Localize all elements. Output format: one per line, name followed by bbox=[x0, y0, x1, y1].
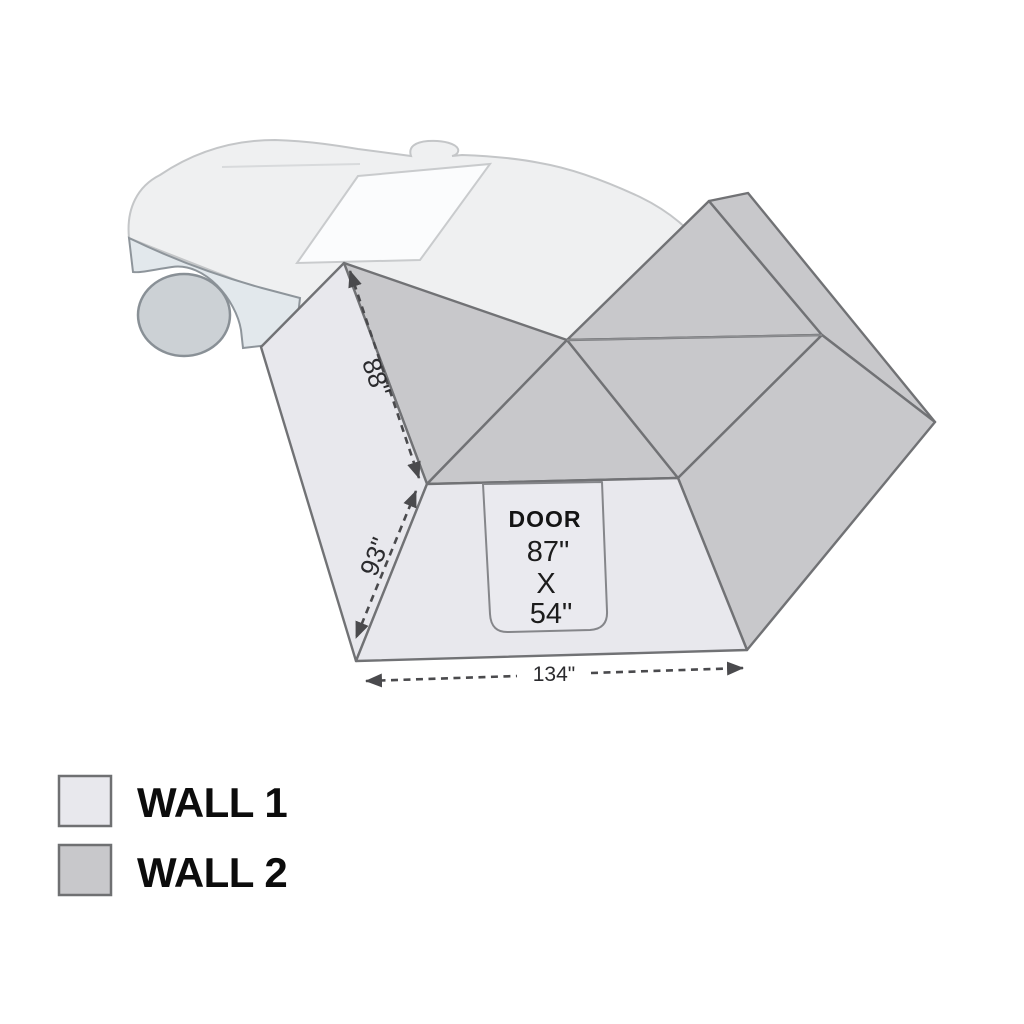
dimension-base-arrow-right bbox=[591, 668, 743, 673]
dimension-base: 134" bbox=[366, 663, 743, 686]
legend: WALL 1 WALL 2 bbox=[59, 776, 287, 896]
legend-swatch-wall2 bbox=[59, 845, 111, 895]
legend-label-wall1: WALL 1 bbox=[137, 779, 287, 826]
door-separator: X bbox=[536, 568, 555, 600]
door-width: 54" bbox=[530, 598, 573, 630]
dimension-base-label: 134" bbox=[533, 663, 576, 686]
legend-label-wall2: WALL 2 bbox=[137, 849, 287, 896]
dimension-base-arrow-left bbox=[366, 676, 517, 681]
awning-diagram: DOOR 87" X 54" 88" 93" 134" WALL 1 WALL … bbox=[0, 0, 1024, 1024]
awning-diagram-page: DOOR 87" X 54" 88" 93" 134" WALL 1 WALL … bbox=[0, 0, 1024, 1024]
legend-swatch-wall1 bbox=[59, 776, 111, 826]
car-wheel bbox=[138, 274, 230, 356]
door-title: DOOR bbox=[509, 506, 582, 532]
door-height: 87" bbox=[527, 536, 570, 568]
